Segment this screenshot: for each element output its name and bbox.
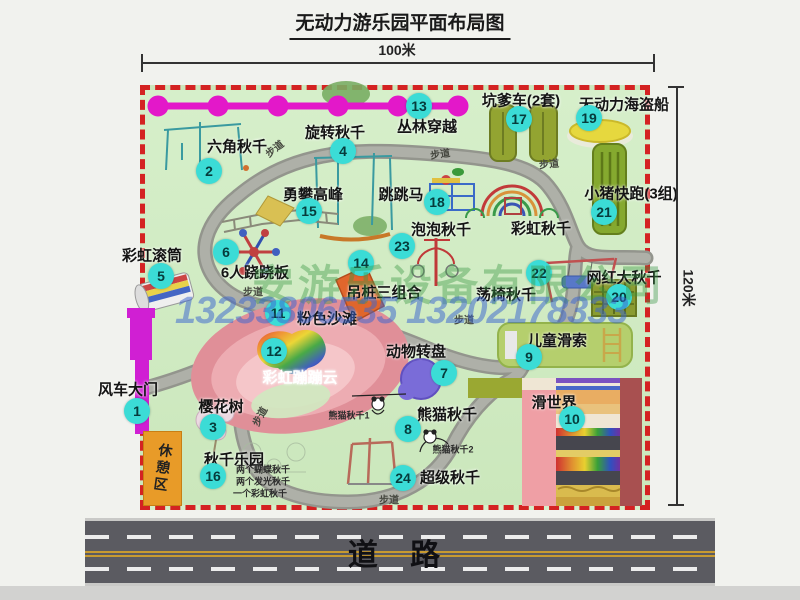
dimension-tick — [668, 504, 684, 506]
attraction-label-8: 熊猫秋千 — [417, 404, 477, 425]
attraction-label-18: 跳跳马 — [378, 184, 423, 205]
dimension-tick — [653, 54, 655, 72]
attraction-badge-20: 20 — [606, 284, 632, 310]
dimension-line-horizontal — [142, 62, 654, 64]
attraction-label-3: 樱花树 — [198, 396, 243, 417]
attraction-badge-6: 6 — [213, 239, 239, 265]
attraction-badge-7: 7 — [431, 360, 457, 386]
attraction-badge-14: 14 — [348, 250, 374, 276]
footpath-label: 步道 — [538, 155, 559, 172]
footpath-label: 步道 — [429, 144, 451, 162]
footpath-label: 步道 — [248, 404, 271, 429]
attraction-label-13: 丛林穿越 — [397, 116, 457, 137]
attraction-label-22: 荡椅秋千 — [476, 284, 536, 305]
attraction-badge-10: 10 — [559, 406, 585, 432]
attraction-badge-21: 21 — [591, 199, 617, 225]
dimension-width-label: 100米 — [378, 40, 415, 60]
attraction-badge-18: 18 — [424, 189, 450, 215]
attraction-badge-3: 3 — [200, 414, 226, 440]
attraction-badge-13: 13 — [406, 93, 432, 119]
attraction-badge-15: 15 — [296, 198, 322, 224]
attraction-label-1: 风车大门 — [98, 379, 158, 400]
attraction-badge-11: 11 — [265, 300, 291, 326]
attraction-note: 一个彩虹秋千 — [233, 487, 287, 500]
footpath-label: 步道 — [243, 284, 263, 299]
attraction-badge-22: 22 — [526, 260, 552, 286]
attraction-label-23: 泡泡秋千 — [411, 219, 471, 240]
attraction-badge-23: 23 — [389, 233, 415, 259]
attraction-label-7: 动物转盘 — [386, 341, 446, 362]
attraction-badge-4: 4 — [330, 138, 356, 164]
attraction-label-5: 彩虹滚筒 — [122, 245, 182, 266]
attraction-label-彩虹秋千: 彩虹秋千 — [511, 218, 571, 239]
attraction-badge-2: 2 — [196, 158, 222, 184]
footpath-label: 步道 — [454, 312, 474, 327]
road: 道 路 — [85, 518, 715, 586]
attraction-badge-1: 1 — [124, 398, 150, 424]
attraction-note: 熊猫秋千2 — [432, 443, 473, 456]
dimension-height-label: 120米 — [679, 269, 699, 306]
dimension-tick — [141, 54, 143, 72]
footpath-label: 步道 — [379, 492, 399, 507]
attraction-badge-5: 5 — [148, 263, 174, 289]
attraction-label-12: 彩虹蹦蹦云 — [262, 367, 337, 388]
attraction-label-2: 六角秋千 — [207, 136, 267, 157]
attraction-badge-8: 8 — [395, 416, 421, 442]
road-label: 道 路 — [348, 530, 452, 574]
park-map-screenshot: 无动力游乐园平面布局图 100米 120米 — [0, 0, 800, 600]
attraction-label-14: 吊桩三组合 — [346, 282, 421, 303]
attraction-badge-19: 19 — [576, 105, 602, 131]
attraction-label-11: 粉色沙滩 — [297, 308, 357, 329]
attraction-label-24: 超级秋千 — [420, 467, 480, 488]
attraction-badge-9: 9 — [516, 344, 542, 370]
page-title: 无动力游乐园平面布局图 — [289, 8, 510, 40]
attraction-badge-24: 24 — [390, 465, 416, 491]
attraction-label-6: 6人跷跷板 — [221, 262, 289, 283]
attraction-badge-16: 16 — [200, 463, 226, 489]
attraction-badge-17: 17 — [506, 106, 532, 132]
dimension-tick — [668, 86, 684, 88]
attraction-note: 熊猫秋千1 — [328, 409, 369, 422]
attraction-badge-12: 12 — [261, 338, 287, 364]
